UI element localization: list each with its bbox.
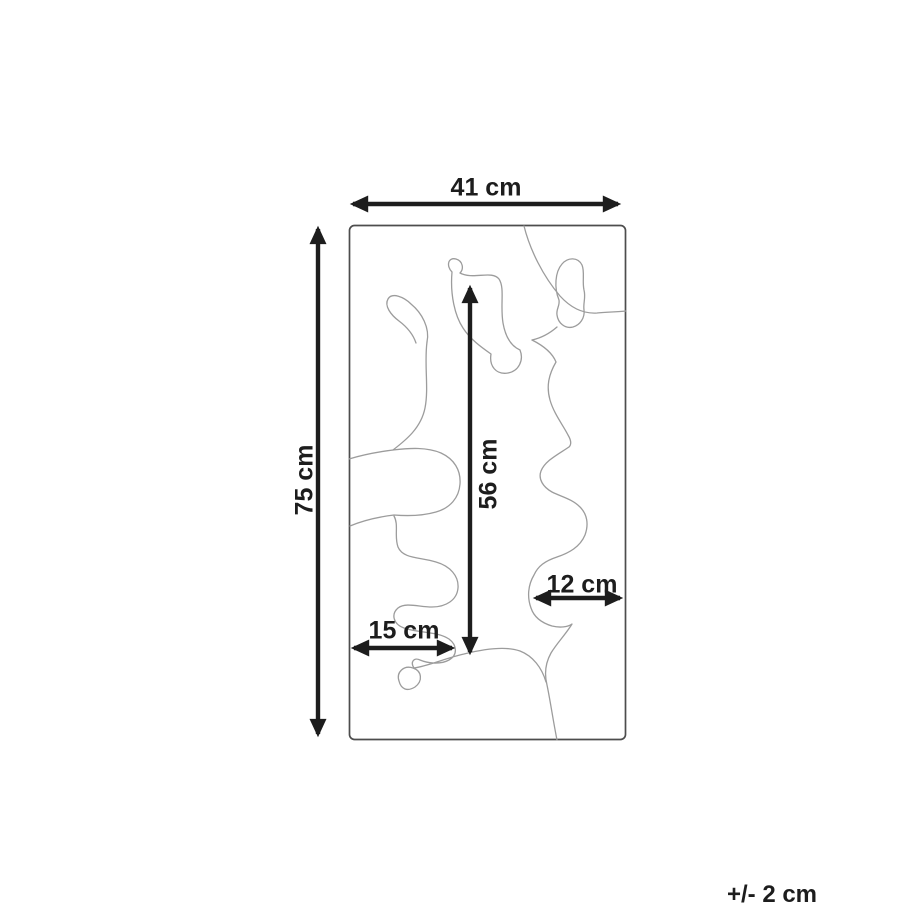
dimension-arrows: [318, 204, 620, 734]
diagram-canvas: 41 cm 75 cm 56 cm 15 cm 12 cm +/- 2 cm: [0, 0, 920, 920]
dimension-drawing-svg: [0, 0, 920, 920]
shape-small-oval-island: [398, 667, 420, 689]
overall-width-label: 41 cm: [451, 176, 522, 201]
shape-central-arch: [449, 259, 522, 374]
shape-right-meander: [529, 340, 587, 740]
shape-left-lobe-row1: [349, 448, 460, 526]
shape-tall-right-finger: [556, 259, 585, 328]
shape-finger-bottom-connector: [532, 327, 557, 340]
shape-top-edge-sweep: [524, 226, 626, 313]
shape-left-sweep: [393, 342, 427, 450]
lower-left-width-label: 15 cm: [369, 619, 440, 644]
shape-nw-finger: [387, 296, 428, 343]
right-gap-width-label: 12 cm: [547, 573, 618, 598]
overall-height-label: 75 cm: [293, 445, 318, 516]
inner-height-label: 56 cm: [477, 439, 502, 510]
tolerance-note: +/- 2 cm: [727, 883, 817, 907]
